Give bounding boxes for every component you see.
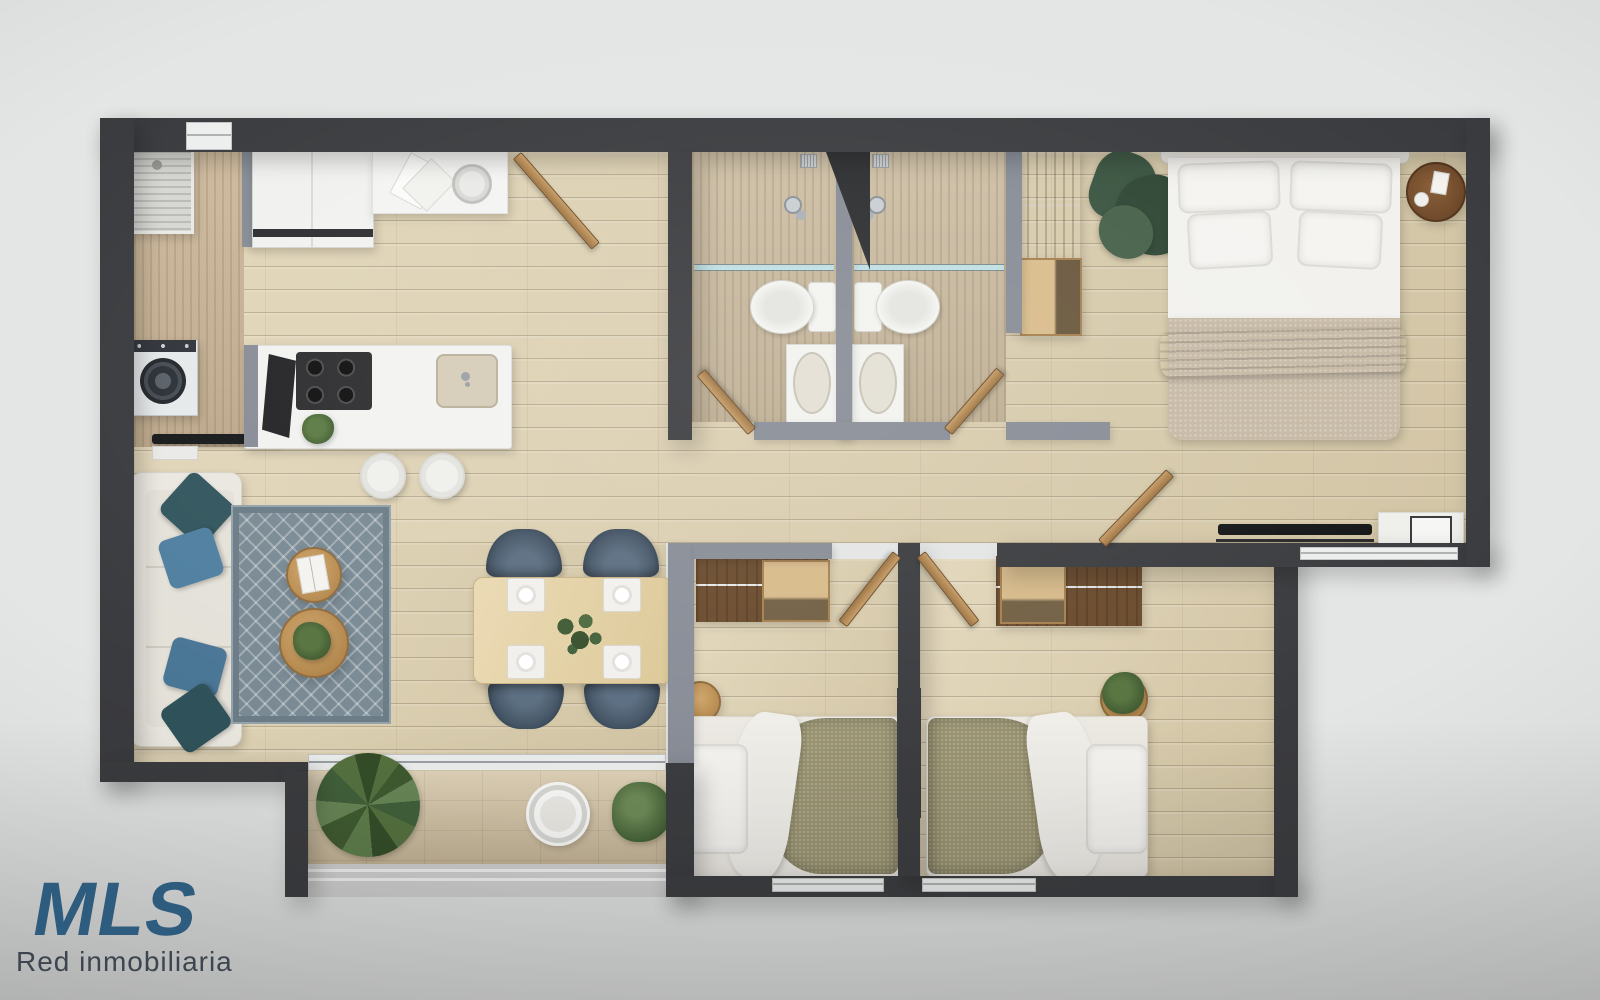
- window-service: [186, 122, 232, 150]
- master-pillow-2: [1289, 160, 1393, 214]
- place-setting-4: [603, 645, 641, 679]
- wall-balcony-left: [285, 772, 308, 897]
- washer-drum: [140, 358, 186, 404]
- shower-head-2: [868, 196, 886, 214]
- wall-bathroom-right: [1006, 152, 1022, 333]
- window-bedroom2: [922, 878, 1036, 892]
- mls-logo: MLS Red inmobiliaria: [16, 874, 233, 978]
- island-side-panel: [244, 345, 258, 447]
- wall-dining-bedroom1: [668, 543, 694, 763]
- coffee-maker: [452, 164, 492, 204]
- place-setting-3: [507, 645, 545, 679]
- master-throw: [1160, 327, 1407, 376]
- bedroom2-plant: [1102, 672, 1144, 714]
- kitchen-sink: [436, 354, 498, 408]
- balcony-plant-large: [316, 753, 420, 857]
- wall-bedroom-partition: [898, 543, 920, 876]
- bed2-pillow: [1086, 744, 1148, 854]
- cooktop: [296, 352, 372, 410]
- master-pillow-1: [1177, 160, 1281, 214]
- shower-drain-1: [800, 154, 817, 168]
- wall-hall: [1006, 422, 1110, 440]
- book: [296, 554, 330, 594]
- master-pillow-4: [1297, 210, 1384, 270]
- wall-living-bottom: [100, 762, 308, 782]
- balcony-wire-chair: [526, 782, 590, 846]
- kitchen-faucet: [461, 372, 470, 381]
- console-frame: [1410, 516, 1452, 545]
- bed1-pillow: [686, 744, 748, 854]
- wall-kitchen-bathroom: [668, 152, 692, 440]
- toilet-bowl-2: [876, 280, 940, 334]
- master-tv: [1218, 524, 1372, 535]
- nightstand-cup: [1414, 192, 1429, 207]
- bedroom2-desk-shelf: [1000, 560, 1066, 624]
- closet-wardrobe: [1018, 150, 1080, 258]
- logo-brand-text: MLS: [28, 874, 204, 946]
- wall-master-right: [1466, 118, 1490, 567]
- bedroom1-desk-shelf: [762, 560, 830, 622]
- wall-top: [100, 118, 1490, 152]
- vanity-basin-2: [859, 352, 897, 414]
- place-setting-2: [603, 578, 641, 612]
- washer-controls: [130, 340, 196, 352]
- window-master: [1300, 547, 1458, 560]
- shower-glass-2: [854, 264, 1004, 271]
- wall-left: [100, 118, 134, 782]
- toilet-bowl-1: [750, 280, 814, 334]
- place-setting-1: [507, 578, 545, 612]
- closet-open-shelf: [1020, 258, 1082, 336]
- wall-bathroom-bottom-a: [754, 422, 950, 440]
- fridge: [252, 150, 374, 248]
- shower-drain-2: [872, 154, 889, 168]
- table-centerpiece: [548, 605, 606, 659]
- window-bedroom1: [772, 878, 884, 892]
- master-pillow-3: [1187, 210, 1274, 270]
- wall-bedroom2-right: [1274, 543, 1298, 897]
- balcony-railing: [300, 864, 668, 897]
- shower-head-1: [784, 196, 802, 214]
- media-unit: [152, 446, 198, 460]
- bar-stool-2: [419, 453, 465, 499]
- floorplan-render: MLS Red inmobiliaria: [0, 0, 1600, 1000]
- wall-bedroom1-top: [694, 543, 832, 559]
- shower-glass-1: [694, 264, 834, 271]
- bar-stool-1: [360, 453, 406, 499]
- utility-sink-drain: [152, 160, 162, 170]
- coffee-table-greenery: [293, 622, 331, 660]
- vanity-basin-1: [793, 352, 831, 414]
